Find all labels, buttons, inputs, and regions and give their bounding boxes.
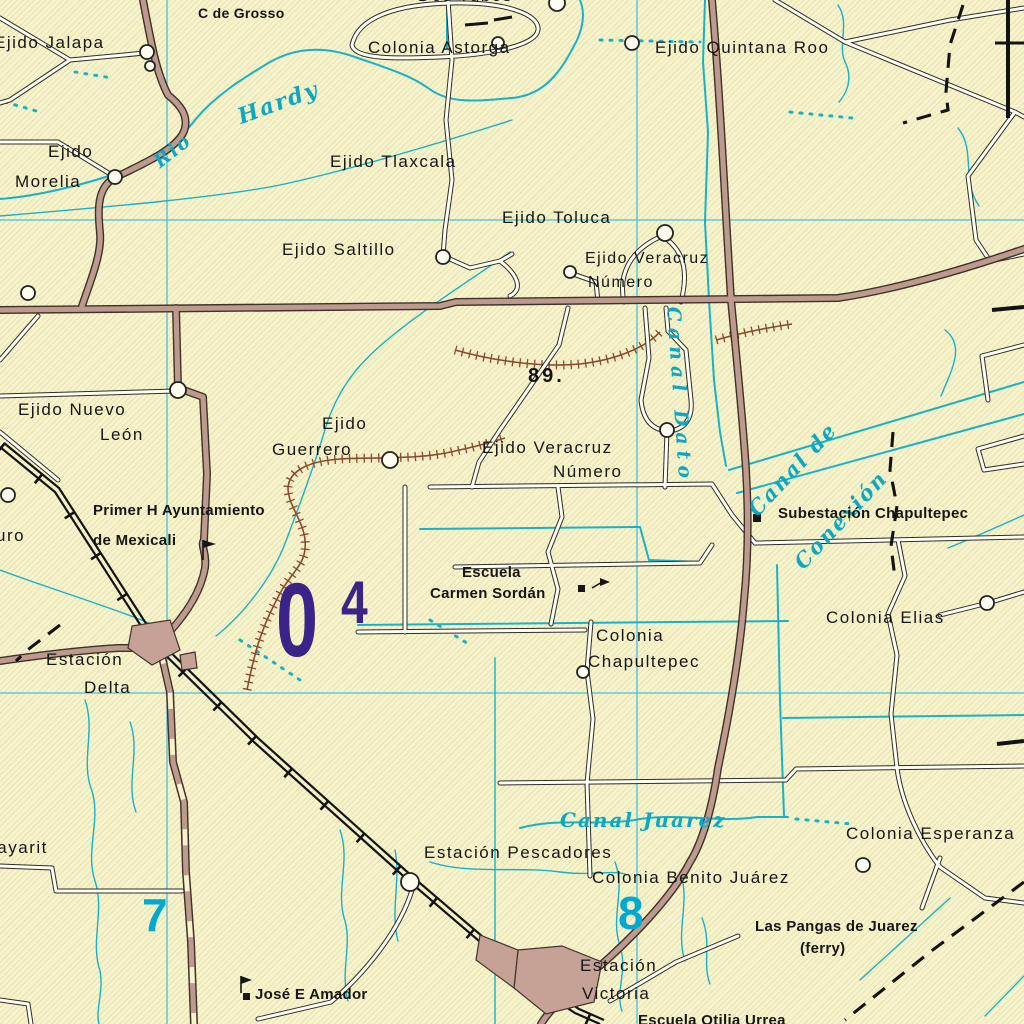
label-ejido-saltillo: Ejido Saltillo — [282, 240, 396, 260]
label-jose-e-amador: José E Amador — [255, 986, 368, 1003]
label-colonia-astorga: Colonia Astorga — [368, 38, 511, 58]
label-escuela-carmen-line1: Escuela — [462, 564, 521, 581]
map-canvas: C de Grosso Dos Tubos Ejido Jalapa Colon… — [0, 0, 1024, 1024]
amador-building-square — [243, 993, 250, 1000]
ayuntamiento-flag — [203, 540, 216, 548]
label-ejido-quintana-roo: Ejido Quintana Roo — [655, 38, 829, 58]
label-estacion-victoria-line2: Victoria — [582, 984, 650, 1004]
label-edge-fragment-uro: uro — [0, 526, 25, 546]
label-escuela-carmen-line2: Carmen Sordán — [430, 585, 546, 602]
label-subestacion-chapultepec: Subestación Chapultepec — [778, 505, 968, 522]
spot-elevation-89: 89. — [528, 365, 565, 388]
label-estacion-delta-line2: Delta — [84, 678, 131, 698]
grid-easting-8: 8 — [618, 886, 644, 940]
label-colonia-esperanza: Colonia Esperanza — [846, 824, 1015, 844]
label-ejido-morelia-line2: Morelia — [15, 172, 81, 192]
label-ejido-veracruz2-line1: Ejido Veracruz — [482, 438, 613, 458]
label-las-pangas-line2: (ferry) — [800, 940, 845, 957]
grid-zone-digit-0: 0 — [276, 574, 318, 669]
label-colonia-elias: Colonia Elias — [826, 608, 945, 628]
label-ejido-veracruz1-line2: Número — [588, 274, 654, 292]
label-ejido-nuevo-leon-line2: León — [100, 425, 144, 445]
label-canal-juarez: Canal Juarez — [560, 808, 727, 832]
label-ejido-tlaxcala: Ejido Tlaxcala — [330, 152, 457, 172]
label-ejido-toluca: Ejido Toluca — [502, 208, 611, 228]
label-ejido-nuevo-leon-line1: Ejido Nuevo — [18, 400, 126, 420]
label-ejido-jalapa: Ejido Jalapa — [0, 33, 105, 53]
label-estacion-victoria-line1: Estación — [580, 956, 657, 976]
label-ejido-nayarit: Ejido Nayarit — [0, 838, 48, 858]
grid-easting-7: 7 — [142, 888, 168, 942]
grid-zone-digit-4: 4 — [341, 576, 368, 630]
label-colonia-chapultepec-line2: Chapultepec — [588, 652, 700, 672]
label-c-de-grosso: C de Grosso — [198, 5, 285, 21]
label-las-pangas-line1: Las Pangas de Juarez — [755, 918, 918, 935]
school-flag — [600, 578, 610, 586]
label-colonia-benito-juarez: Colonia Benito Juárez — [592, 868, 790, 888]
label-dos-tubos: Dos Tubos — [418, 0, 513, 6]
label-escuela-otilia-urrea: Escuela Otilia Urrea — [638, 1012, 786, 1024]
school-building-square — [578, 585, 585, 592]
label-ejido-veracruz1-line1: Ejido Veracruz — [585, 250, 709, 268]
label-primer-h-line1: Primer H Ayuntamiento — [93, 502, 265, 519]
label-ejido-guerrero-line1: Ejido — [322, 414, 367, 434]
label-ejido-guerrero-line2: Guerrero — [272, 440, 352, 460]
label-estacion-pescadores: Estación Pescadores — [424, 843, 612, 863]
levee-hatched-lines — [247, 324, 792, 690]
amador-flag — [241, 976, 252, 984]
label-primer-h-line2: de Mexicali — [93, 532, 176, 549]
label-ejido-veracruz2-line2: Número — [553, 462, 622, 482]
label-ejido-morelia-line1: Ejido — [48, 142, 93, 162]
label-estacion-delta-line1: Estación — [46, 650, 123, 670]
label-colonia-chapultepec-line1: Colonia — [596, 626, 664, 646]
